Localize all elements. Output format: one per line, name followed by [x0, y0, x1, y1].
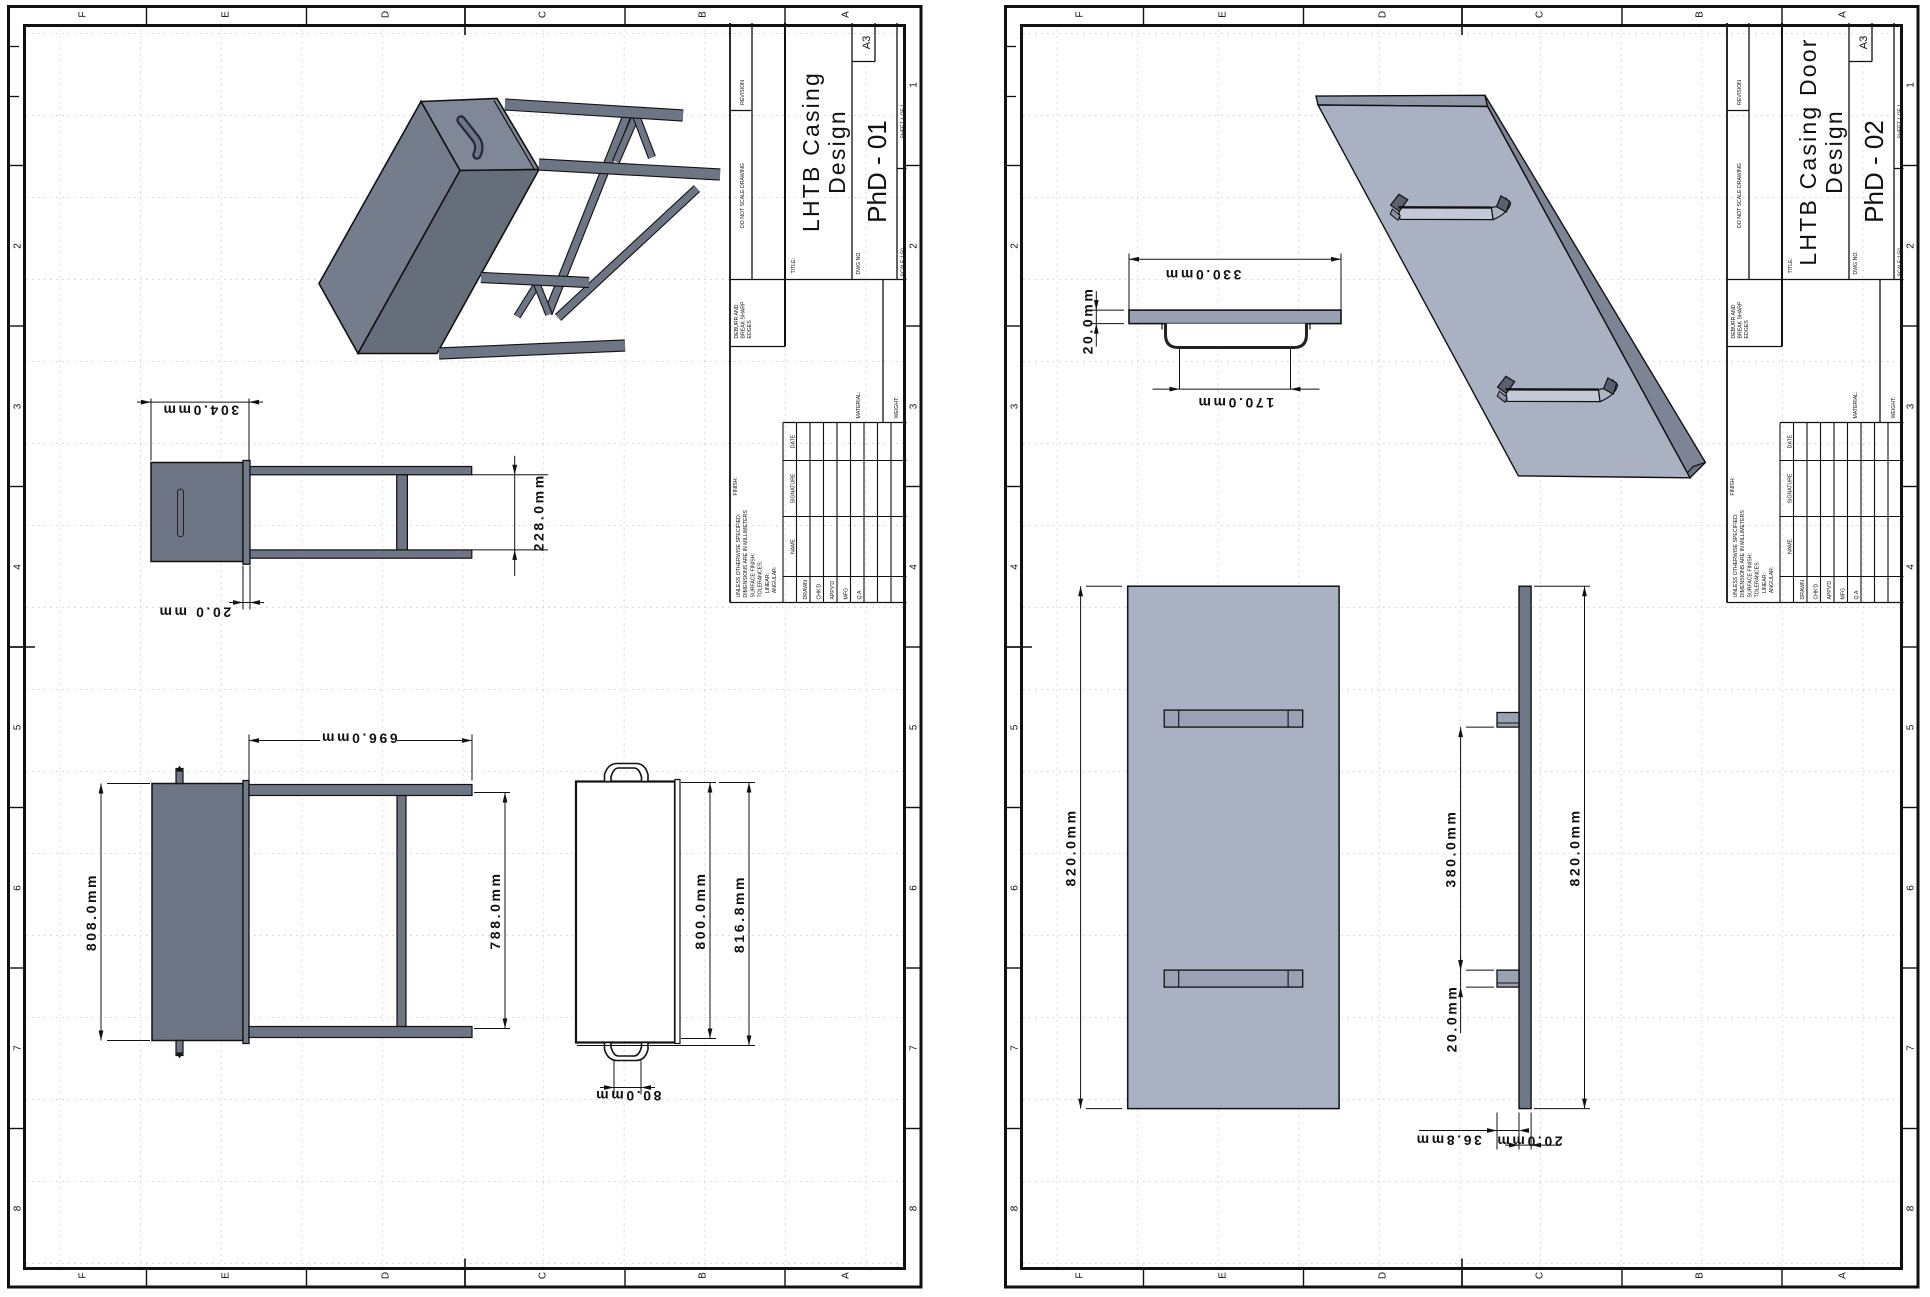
svg-text:SCALE:1:50: SCALE:1:50: [901, 248, 907, 277]
svg-text:TITLE:: TITLE:: [1788, 258, 1794, 274]
svg-text:C: C: [1535, 11, 1546, 18]
svg-text:1: 1: [909, 82, 920, 88]
svg-text:E: E: [1218, 1272, 1229, 1279]
svg-text:20.0mm: 20.0mm: [1495, 1134, 1563, 1150]
svg-text:4: 4: [1906, 564, 1917, 570]
svg-text:BREAK SHARP: BREAK SHARP: [740, 301, 746, 338]
svg-text:PhD - 01: PhD - 01: [862, 120, 892, 223]
svg-text:B: B: [698, 11, 709, 18]
svg-text:A3: A3: [1858, 36, 1870, 49]
svg-text:6: 6: [13, 885, 24, 891]
svg-text:170.0mm: 170.0mm: [1196, 395, 1274, 411]
svg-text:DEBURR AND: DEBURR AND: [734, 304, 740, 338]
svg-text:F: F: [1075, 1272, 1086, 1278]
svg-text:Design: Design: [1821, 109, 1847, 194]
svg-text:LHTB Casing Door: LHTB Casing Door: [1795, 37, 1821, 265]
svg-text:820.0mm: 820.0mm: [1567, 808, 1583, 886]
svg-text:330.0mm: 330.0mm: [1163, 267, 1241, 283]
svg-text:FINISH:: FINISH:: [1730, 477, 1736, 495]
svg-text:8: 8: [1906, 1205, 1917, 1211]
svg-text:A: A: [1838, 1272, 1849, 1279]
svg-text:CHK'D: CHK'D: [1814, 584, 1820, 600]
svg-text:C: C: [1535, 1272, 1546, 1279]
svg-text:D: D: [1378, 11, 1389, 18]
svg-text:Design: Design: [824, 109, 850, 194]
svg-text:Q.A: Q.A: [857, 590, 863, 599]
svg-text:F: F: [78, 1272, 89, 1278]
svg-text:3: 3: [1906, 403, 1917, 409]
svg-text:APPV'D: APPV'D: [830, 581, 836, 600]
svg-text:6: 6: [1906, 885, 1917, 891]
svg-text:788.0mm: 788.0mm: [487, 871, 503, 949]
svg-text:7: 7: [1906, 1045, 1917, 1051]
svg-text:7: 7: [1010, 1045, 1021, 1051]
svg-text:DIMENSIONS ARE IN MILLIMETERS: DIMENSIONS ARE IN MILLIMETERS: [743, 510, 749, 598]
svg-text:20.0 mm: 20.0 mm: [157, 605, 231, 621]
svg-text:UNLESS OTHERWISE SPECIFIED:: UNLESS OTHERWISE SPECIFIED:: [1733, 514, 1739, 598]
svg-text:WEIGHT:: WEIGHT:: [1891, 397, 1897, 419]
svg-text:DATE: DATE: [1788, 434, 1794, 448]
svg-text:F: F: [1075, 11, 1086, 17]
svg-text:8: 8: [1010, 1205, 1021, 1211]
svg-text:REVISION: REVISION: [1737, 80, 1743, 105]
svg-text:5: 5: [1010, 724, 1021, 730]
svg-text:DIMENSIONS ARE IN MILLIMETERS: DIMENSIONS ARE IN MILLIMETERS: [1740, 510, 1746, 598]
svg-text:2: 2: [1906, 243, 1917, 249]
svg-text:6: 6: [909, 885, 920, 891]
svg-text:C: C: [538, 11, 549, 18]
svg-text:816.8mm: 816.8mm: [731, 875, 747, 953]
svg-text:5: 5: [13, 724, 24, 730]
svg-text:7: 7: [13, 1045, 24, 1051]
svg-text:A: A: [841, 11, 852, 18]
svg-text:SIGNATURE: SIGNATURE: [791, 473, 797, 503]
svg-text:TITLE:: TITLE:: [791, 258, 797, 274]
svg-text:3: 3: [1010, 403, 1021, 409]
svg-text:20.0mm: 20.0mm: [1444, 985, 1460, 1053]
svg-text:B: B: [698, 1272, 709, 1279]
svg-text:LINEAR:: LINEAR:: [765, 573, 771, 598]
svg-text:CHK'D: CHK'D: [817, 584, 823, 600]
svg-text:MFG: MFG: [844, 588, 850, 600]
svg-text:2: 2: [13, 243, 24, 249]
svg-text:TOLERANCES:: TOLERANCES:: [758, 561, 764, 598]
svg-text:DATE: DATE: [791, 434, 797, 448]
svg-text:D: D: [381, 11, 392, 18]
svg-text:228.0mm: 228.0mm: [531, 473, 547, 551]
svg-text:C: C: [538, 1272, 549, 1279]
svg-text:SURFACE FINISH:: SURFACE FINISH:: [1747, 553, 1753, 597]
svg-text:SURFACE FINISH:: SURFACE FINISH:: [750, 553, 756, 597]
svg-text:2: 2: [1010, 243, 1021, 249]
svg-text:2: 2: [909, 243, 920, 249]
svg-text:820.0mm: 820.0mm: [1063, 808, 1079, 886]
svg-text:3: 3: [909, 403, 920, 409]
svg-text:8: 8: [13, 1205, 24, 1211]
svg-text:MATERIAL:: MATERIAL:: [1853, 392, 1859, 419]
svg-text:NAME: NAME: [791, 538, 797, 554]
svg-text:7: 7: [909, 1045, 920, 1051]
svg-text:DO NOT SCALE DRAWING: DO NOT SCALE DRAWING: [740, 163, 746, 228]
svg-text:PhD - 02: PhD - 02: [1859, 120, 1889, 223]
svg-text:Q.A: Q.A: [1854, 590, 1860, 599]
svg-text:DEBURR AND: DEBURR AND: [1731, 304, 1737, 338]
svg-text:A: A: [841, 1272, 852, 1279]
svg-text:D: D: [1378, 1272, 1389, 1279]
svg-text:F: F: [78, 11, 89, 17]
svg-text:ANGULAR:: ANGULAR:: [772, 567, 778, 598]
svg-text:1: 1: [1906, 82, 1917, 88]
svg-text:380.0mm: 380.0mm: [1443, 810, 1459, 888]
svg-text:FINISH:: FINISH:: [733, 477, 739, 495]
svg-text:D: D: [381, 1272, 392, 1279]
svg-text:80.0mm: 80.0mm: [594, 1088, 662, 1104]
svg-text:WEIGHT:: WEIGHT:: [894, 397, 900, 419]
svg-text:800.0mm: 800.0mm: [692, 871, 708, 949]
svg-text:DWG NO.: DWG NO.: [1853, 251, 1859, 274]
svg-text:BREAK SHARP: BREAK SHARP: [1737, 301, 1743, 338]
svg-text:4: 4: [1010, 564, 1021, 570]
svg-text:4: 4: [13, 564, 24, 570]
svg-text:3: 3: [13, 403, 24, 409]
svg-text:B: B: [1695, 11, 1706, 18]
svg-text:DO NOT SCALE DRAWING: DO NOT SCALE DRAWING: [1737, 163, 1743, 228]
svg-text:UNLESS OTHERWISE SPECIFIED:: UNLESS OTHERWISE SPECIFIED:: [736, 514, 742, 598]
svg-text:A: A: [1838, 11, 1849, 18]
svg-text:696.0mm: 696.0mm: [319, 731, 397, 747]
svg-text:APPV'D: APPV'D: [1827, 581, 1833, 600]
svg-text:4: 4: [909, 564, 920, 570]
svg-text:808.0mm: 808.0mm: [83, 873, 99, 951]
svg-text:DWG NO.: DWG NO.: [856, 251, 862, 274]
svg-text:REVISION: REVISION: [740, 80, 746, 105]
svg-text:TOLERANCES:: TOLERANCES:: [1755, 561, 1761, 598]
svg-text:6: 6: [1010, 885, 1021, 891]
svg-text:A3: A3: [861, 36, 873, 49]
svg-text:LINEAR:: LINEAR:: [1762, 573, 1768, 598]
svg-text:MFG: MFG: [1841, 588, 1847, 600]
svg-text:EDGES: EDGES: [1744, 320, 1750, 339]
svg-text:NAME: NAME: [1788, 538, 1794, 554]
svg-text:ANGULAR:: ANGULAR:: [1769, 567, 1775, 598]
svg-text:SIGNATURE: SIGNATURE: [1788, 473, 1794, 503]
svg-text:MATERIAL:: MATERIAL:: [856, 392, 862, 419]
svg-text:5: 5: [1906, 724, 1917, 730]
svg-text:8: 8: [909, 1205, 920, 1211]
svg-text:20.0mm: 20.0mm: [1079, 287, 1095, 355]
svg-text:SHEET 1 OF 1: SHEET 1 OF 1: [1898, 104, 1904, 139]
svg-text:E: E: [221, 1272, 232, 1279]
svg-text:E: E: [221, 11, 232, 18]
svg-text:304.0mm: 304.0mm: [161, 403, 239, 419]
svg-text:EDGES: EDGES: [747, 320, 753, 339]
svg-text:DRAWN: DRAWN: [1800, 580, 1806, 600]
svg-text:SCALE:1:50: SCALE:1:50: [1898, 248, 1904, 277]
svg-text:36.8mm: 36.8mm: [1414, 1133, 1482, 1149]
svg-text:LHTB Casing: LHTB Casing: [798, 71, 824, 232]
svg-text:DRAWN: DRAWN: [803, 580, 809, 600]
svg-text:E: E: [1218, 11, 1229, 18]
svg-text:SHEET 1 OF 1: SHEET 1 OF 1: [901, 104, 907, 139]
svg-text:B: B: [1695, 1272, 1706, 1279]
svg-text:5: 5: [909, 724, 920, 730]
